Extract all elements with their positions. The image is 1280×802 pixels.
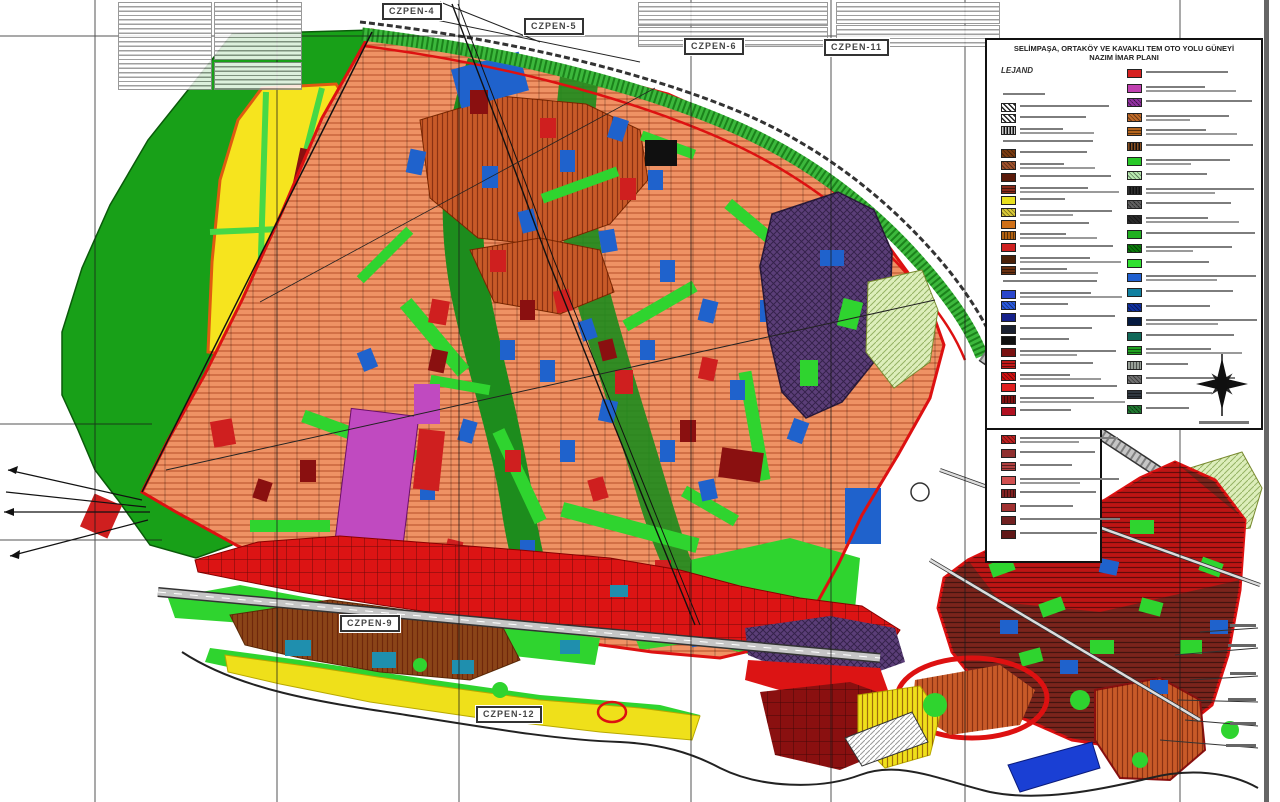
legend-label-placeholder	[1146, 144, 1253, 146]
legend-swatch	[1001, 516, 1016, 525]
legend-swatch	[1001, 372, 1016, 381]
legend-label-placeholder	[1146, 86, 1205, 88]
legend-label-placeholder	[1146, 261, 1209, 263]
legend-label-placeholder	[1146, 159, 1230, 161]
reference-table-block	[214, 2, 302, 60]
legend-label-placeholder	[1020, 292, 1091, 294]
legend-label-placeholder	[1020, 505, 1073, 507]
legend-swatch	[1001, 173, 1016, 182]
legend-swatch	[1127, 230, 1142, 239]
legend-label-placeholder	[1020, 268, 1067, 270]
legend-label-placeholder	[1146, 192, 1215, 194]
legend-swatch	[1001, 503, 1016, 512]
legend-item	[1001, 529, 1097, 543]
legend-swatch	[1001, 313, 1016, 322]
legend-item	[1001, 289, 1119, 301]
legend-label-placeholder	[1020, 437, 1118, 439]
legend-swatch	[1127, 113, 1142, 122]
legend-swatch	[1001, 407, 1016, 416]
legend-swatch	[1001, 114, 1016, 123]
legend-item	[1127, 126, 1259, 141]
legend-swatch	[1001, 255, 1016, 264]
legend-heading: LEJAND	[1001, 66, 1033, 75]
legend-label-placeholder	[1020, 296, 1122, 298]
legend-item	[1127, 302, 1259, 317]
legend-swatch	[1127, 84, 1142, 93]
legend-item	[1001, 184, 1119, 196]
legend-item	[1127, 199, 1259, 214]
legend-swatch	[1001, 360, 1016, 369]
legend-swatch	[1127, 142, 1142, 151]
legend-label-placeholder	[1146, 163, 1191, 165]
reference-table-block	[214, 62, 302, 90]
compass-caption-placeholder	[1199, 421, 1249, 424]
legend-swatch	[1127, 361, 1142, 370]
legend-column-left-continued	[1001, 434, 1097, 542]
reference-table-block	[118, 2, 212, 90]
legend-label-placeholder	[1020, 132, 1094, 134]
legend-label-placeholder	[1146, 407, 1189, 409]
legend-swatch	[1127, 332, 1142, 341]
legend-label-placeholder	[1146, 279, 1217, 281]
legend-item	[1001, 434, 1097, 448]
legend-label-placeholder	[1146, 71, 1228, 73]
legend-item	[1001, 406, 1119, 418]
legend-item	[1127, 83, 1259, 98]
legend-item	[1001, 207, 1119, 219]
legend-swatch	[1127, 69, 1142, 78]
legend-item	[1127, 316, 1259, 331]
legend-label-placeholder	[1020, 350, 1116, 352]
legend-label-placeholder	[1146, 305, 1210, 307]
legend-item	[1001, 148, 1119, 160]
legend-swatch	[1127, 346, 1142, 355]
legend-item	[1127, 229, 1259, 244]
legend-label-placeholder	[1020, 464, 1072, 466]
legend-label-placeholder	[1020, 222, 1089, 224]
legend-label-placeholder	[1020, 175, 1111, 177]
page-edge-bar	[1264, 0, 1269, 802]
legend-swatch	[1001, 103, 1016, 112]
legend-item	[1001, 359, 1119, 371]
legend-label-placeholder	[1003, 93, 1045, 95]
legend-swatch	[1001, 196, 1016, 205]
legend-swatch	[1001, 161, 1016, 170]
legend-swatch	[1001, 489, 1016, 498]
legend-swatch	[1127, 259, 1142, 268]
plan-title-line2: NAZIM İMAR PLANI	[991, 53, 1257, 62]
legend-item	[1001, 160, 1119, 172]
legend-label-placeholder	[1146, 188, 1254, 190]
legend-label-placeholder	[1020, 233, 1066, 235]
legend-label-placeholder	[1020, 491, 1096, 493]
legend-item	[1001, 382, 1119, 394]
legend-item	[1001, 394, 1119, 406]
legend-swatch	[1001, 301, 1016, 310]
legend-label-placeholder	[1020, 362, 1093, 364]
legend-label-placeholder	[1146, 246, 1232, 248]
legend-item	[1127, 141, 1259, 156]
legend-item	[1001, 475, 1097, 489]
legend-swatch	[1001, 126, 1016, 135]
legend-swatch	[1001, 243, 1016, 252]
legend-label-placeholder	[1146, 129, 1206, 131]
legend-label-placeholder	[1020, 327, 1092, 329]
legend-label-placeholder	[1020, 401, 1125, 403]
legend-label-placeholder	[1020, 451, 1095, 453]
legend-item	[1001, 347, 1119, 359]
legend-panel: SELİMPAŞA, ORTAKÖY VE KAVAKLI TEM OTO YO…	[985, 38, 1263, 430]
legend-label-placeholder	[1020, 261, 1121, 263]
legend-item	[1001, 230, 1119, 242]
reference-table-block	[638, 2, 828, 26]
legend-swatch	[1127, 98, 1142, 107]
legend-item	[1001, 90, 1119, 102]
legend-label-placeholder	[1020, 237, 1097, 239]
legend-label-placeholder	[1020, 518, 1120, 520]
legend-swatch	[1127, 317, 1142, 326]
sheet-label: CZPEN-11	[824, 39, 889, 56]
legend-label-placeholder	[1146, 334, 1234, 336]
legend-label-placeholder	[1020, 385, 1117, 387]
legend-label-placeholder	[1020, 482, 1080, 484]
legend-column-left	[1001, 90, 1119, 417]
legend-label-placeholder	[1146, 232, 1255, 234]
legend-label-placeholder	[1146, 275, 1256, 277]
legend-label-placeholder	[1020, 409, 1071, 411]
legend-swatch	[1127, 405, 1142, 414]
legend-label-placeholder	[1146, 217, 1208, 219]
legend-swatch	[1001, 231, 1016, 240]
legend-swatch	[1001, 476, 1016, 485]
legend-label-placeholder	[1020, 210, 1112, 212]
legend-label-placeholder	[1003, 140, 1093, 142]
legend-label-placeholder	[1020, 116, 1086, 118]
legend-label-placeholder	[1020, 245, 1113, 247]
legend-swatch	[1127, 375, 1142, 384]
legend-label-placeholder	[1146, 133, 1237, 135]
legend-item	[1001, 254, 1119, 266]
legend-item	[1001, 335, 1119, 347]
legend-label-placeholder	[1020, 315, 1115, 317]
legend-swatch	[1001, 530, 1016, 539]
legend-label-placeholder	[1020, 105, 1109, 107]
sheet-label: CZPEN-12	[476, 706, 542, 723]
legend-label-placeholder	[1020, 187, 1088, 189]
legend-item	[1127, 243, 1259, 258]
legend-item	[1127, 156, 1259, 171]
sheet-label: CZPEN-5	[524, 18, 584, 35]
legend-item	[1127, 214, 1259, 229]
legend-item	[1001, 502, 1097, 516]
legend-item	[1127, 258, 1259, 273]
legend-item	[1001, 515, 1097, 529]
legend-item	[1127, 68, 1259, 83]
legend-item	[1001, 137, 1119, 149]
legend-label-placeholder	[1020, 128, 1063, 130]
legend-swatch	[1127, 288, 1142, 297]
legend-item	[1001, 113, 1119, 125]
legend-label-placeholder	[1146, 119, 1190, 121]
legend-label-placeholder	[1146, 100, 1252, 102]
legend-swatch	[1001, 348, 1016, 357]
legend-label-placeholder	[1020, 378, 1101, 380]
legend-label-placeholder	[1146, 250, 1193, 252]
zoning-plan-page: CZPEN-4 CZPEN-5 CZPEN-6 CZPEN-11 CZPEN-9…	[0, 0, 1280, 802]
legend-swatch	[1001, 290, 1016, 299]
sheet-label: CZPEN-4	[382, 3, 442, 20]
legend-swatch	[1127, 303, 1142, 312]
legend-label-placeholder	[1146, 363, 1188, 365]
legend-swatch	[1127, 171, 1142, 180]
legend-item	[1127, 112, 1259, 127]
legend-item	[1001, 488, 1097, 502]
legend-label-placeholder	[1146, 323, 1218, 325]
legend-swatch	[1001, 220, 1016, 229]
north-arrow-icon	[1191, 350, 1253, 420]
legend-swatch	[1001, 325, 1016, 334]
legend-swatch	[1001, 449, 1016, 458]
legend-item	[1001, 461, 1097, 475]
legend-label-placeholder	[1020, 397, 1094, 399]
legend-label-placeholder	[1003, 280, 1097, 282]
legend-swatch	[1127, 273, 1142, 282]
legend-swatch	[1127, 390, 1142, 399]
legend-swatch	[1001, 185, 1016, 194]
legend-label-placeholder	[1146, 90, 1236, 92]
legend-label-placeholder	[1146, 202, 1231, 204]
legend-swatch	[1001, 462, 1016, 471]
legend-label-placeholder	[1020, 272, 1098, 274]
legend-swatch	[1001, 208, 1016, 217]
legend-label-placeholder	[1020, 478, 1119, 480]
sheet-label: CZPEN-6	[684, 38, 744, 55]
legend-item	[1001, 219, 1119, 231]
legend-swatch	[1127, 215, 1142, 224]
legend-item	[1127, 287, 1259, 302]
legend-swatch	[1001, 383, 1016, 392]
legend-label-placeholder	[1020, 532, 1097, 534]
legend-item	[1001, 300, 1119, 312]
legend-label-placeholder	[1020, 214, 1073, 216]
legend-swatch	[1127, 244, 1142, 253]
legend-swatch	[1001, 395, 1016, 404]
legend-label-placeholder	[1020, 167, 1095, 169]
legend-item	[1001, 242, 1119, 254]
legend-label-placeholder	[1020, 163, 1064, 165]
legend-label-placeholder	[1020, 441, 1079, 443]
legend-swatch	[1127, 200, 1142, 209]
legend-swatch	[1127, 186, 1142, 195]
legend-item	[1001, 125, 1119, 137]
legend-label-placeholder	[1020, 198, 1065, 200]
legend-panel-extension	[985, 430, 1102, 563]
legend-swatch	[1001, 266, 1016, 275]
reference-table-block	[836, 2, 1000, 24]
legend-item	[1001, 277, 1119, 289]
legend-item	[1001, 102, 1119, 114]
legend-swatch	[1001, 149, 1016, 158]
legend-item	[1001, 324, 1119, 336]
legend-label-placeholder	[1020, 303, 1068, 305]
legend-label-placeholder	[1020, 257, 1090, 259]
legend-item	[1001, 195, 1119, 207]
legend-item	[1001, 371, 1119, 383]
legend-label-placeholder	[1020, 354, 1077, 356]
legend-item	[1127, 331, 1259, 346]
legend-label-placeholder	[1146, 221, 1239, 223]
legend-item	[1001, 312, 1119, 324]
legend-swatch	[1001, 336, 1016, 345]
legend-swatch	[1127, 127, 1142, 136]
legend-swatch	[1001, 435, 1016, 444]
legend-item	[1001, 448, 1097, 462]
legend-label-placeholder	[1146, 173, 1207, 175]
legend-label-placeholder	[1020, 151, 1087, 153]
legend-label-placeholder	[1020, 338, 1069, 340]
legend-label-placeholder	[1146, 319, 1257, 321]
legend-item	[1001, 172, 1119, 184]
legend-label-placeholder	[1146, 115, 1229, 117]
legend-swatch	[1127, 157, 1142, 166]
plan-title-line1: SELİMPAŞA, ORTAKÖY VE KAVAKLI TEM OTO YO…	[991, 44, 1257, 53]
legend-item	[1001, 265, 1119, 277]
legend-item	[1127, 272, 1259, 287]
legend-item	[1127, 170, 1259, 185]
sheet-label: CZPEN-9	[340, 615, 400, 632]
legend-item	[1127, 185, 1259, 200]
legend-label-placeholder	[1020, 191, 1119, 193]
legend-label-placeholder	[1146, 290, 1233, 292]
legend-item	[1127, 97, 1259, 112]
legend-label-placeholder	[1020, 374, 1070, 376]
